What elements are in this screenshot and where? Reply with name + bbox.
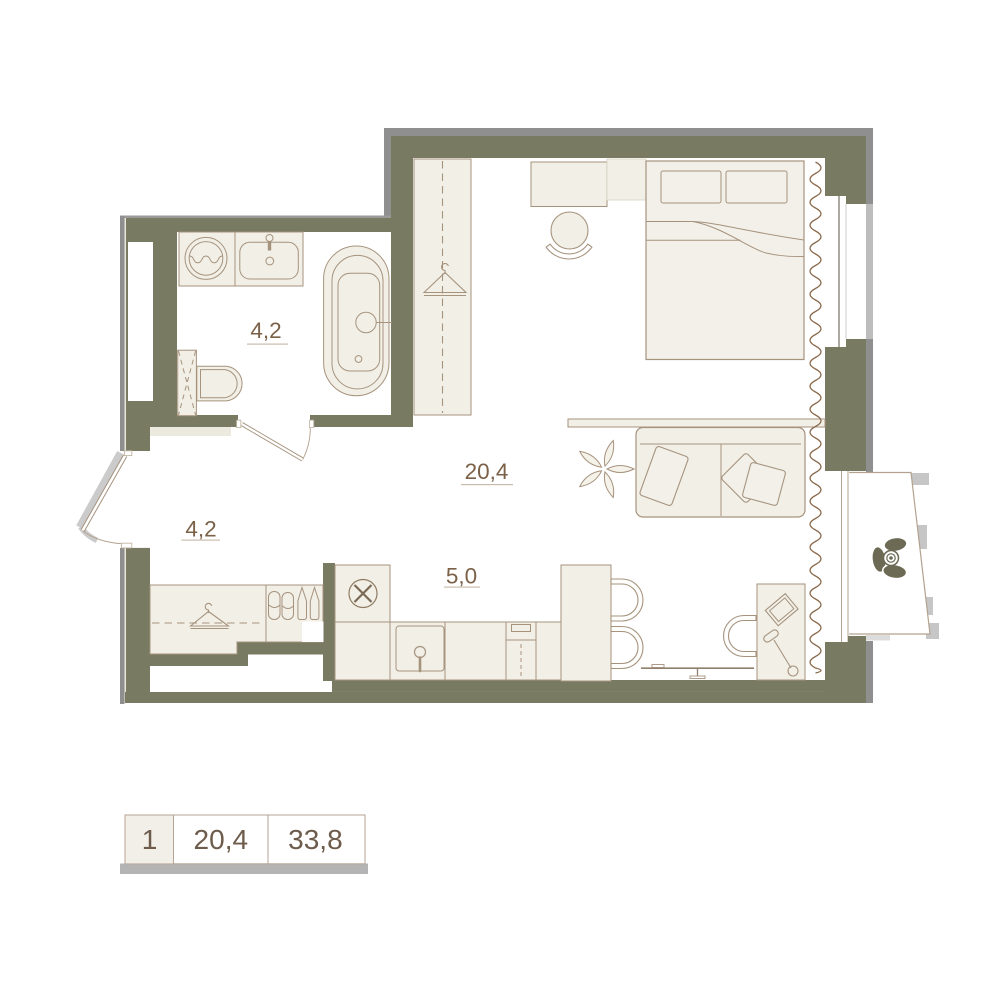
svg-text:20,4: 20,4 (465, 459, 509, 484)
svg-text:33,8: 33,8 (288, 824, 343, 855)
svg-text:1: 1 (142, 824, 158, 855)
svg-text:4,2: 4,2 (250, 318, 281, 343)
svg-text:20,4: 20,4 (194, 824, 249, 855)
svg-text:4,2: 4,2 (185, 517, 216, 542)
svg-text:5,0: 5,0 (446, 564, 477, 589)
